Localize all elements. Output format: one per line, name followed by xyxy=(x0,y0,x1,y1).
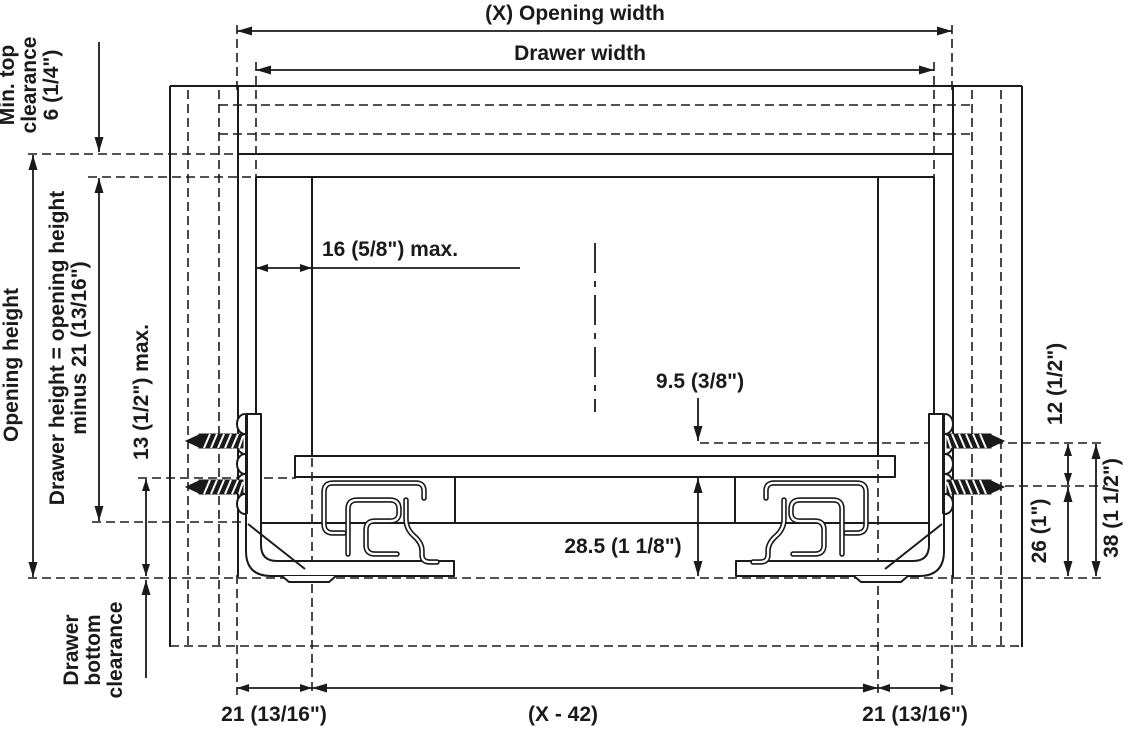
left-21-label: 21 (13/16") xyxy=(221,703,327,726)
drawer-height-label-2: minus 21 (13/16") xyxy=(68,261,91,434)
detent-bump xyxy=(282,576,336,582)
13-max-label: 13 (1/2") max. xyxy=(130,324,153,460)
min-top-clearance-label-2: clearance xyxy=(18,37,41,134)
drawer-bottom-panel xyxy=(295,456,895,477)
opening-height-label: Opening height xyxy=(0,288,23,442)
drawer-bottom-clearance-label-1: Drawer xyxy=(60,614,83,685)
26-label: 26 (1") xyxy=(1028,499,1051,564)
drawer-slide-diagram: (X) Opening width Drawer width Min. top … xyxy=(0,0,1131,730)
12-label: 12 (1/2") xyxy=(1044,343,1067,425)
9-5-label: 9.5 (3/8") xyxy=(656,370,744,393)
drawer-height-label-1: Drawer height = opening height xyxy=(46,191,69,505)
opening-width-label: (X) Opening width xyxy=(485,2,665,25)
x-minus-42-label: (X - 42) xyxy=(528,703,598,726)
drawer-bottom-clearance-label-2: bottom xyxy=(82,614,105,685)
38-label: 38 (1 1/2") xyxy=(1100,458,1123,558)
min-top-clearance-label-1: Min. top xyxy=(0,45,19,125)
drawer-width-label: Drawer width xyxy=(514,42,646,65)
16-max-label: 16 (5/8") max. xyxy=(322,238,458,261)
min-top-clearance-label-3: 6 (1/4") xyxy=(40,50,63,121)
diagram-canvas: (X) Opening width Drawer width Min. top … xyxy=(0,0,1131,730)
right-21-label: 21 (13/16") xyxy=(862,703,968,726)
28-5-label: 28.5 (1 1/8") xyxy=(564,535,681,558)
drawer-bottom-clearance-label-3: clearance xyxy=(104,602,127,699)
